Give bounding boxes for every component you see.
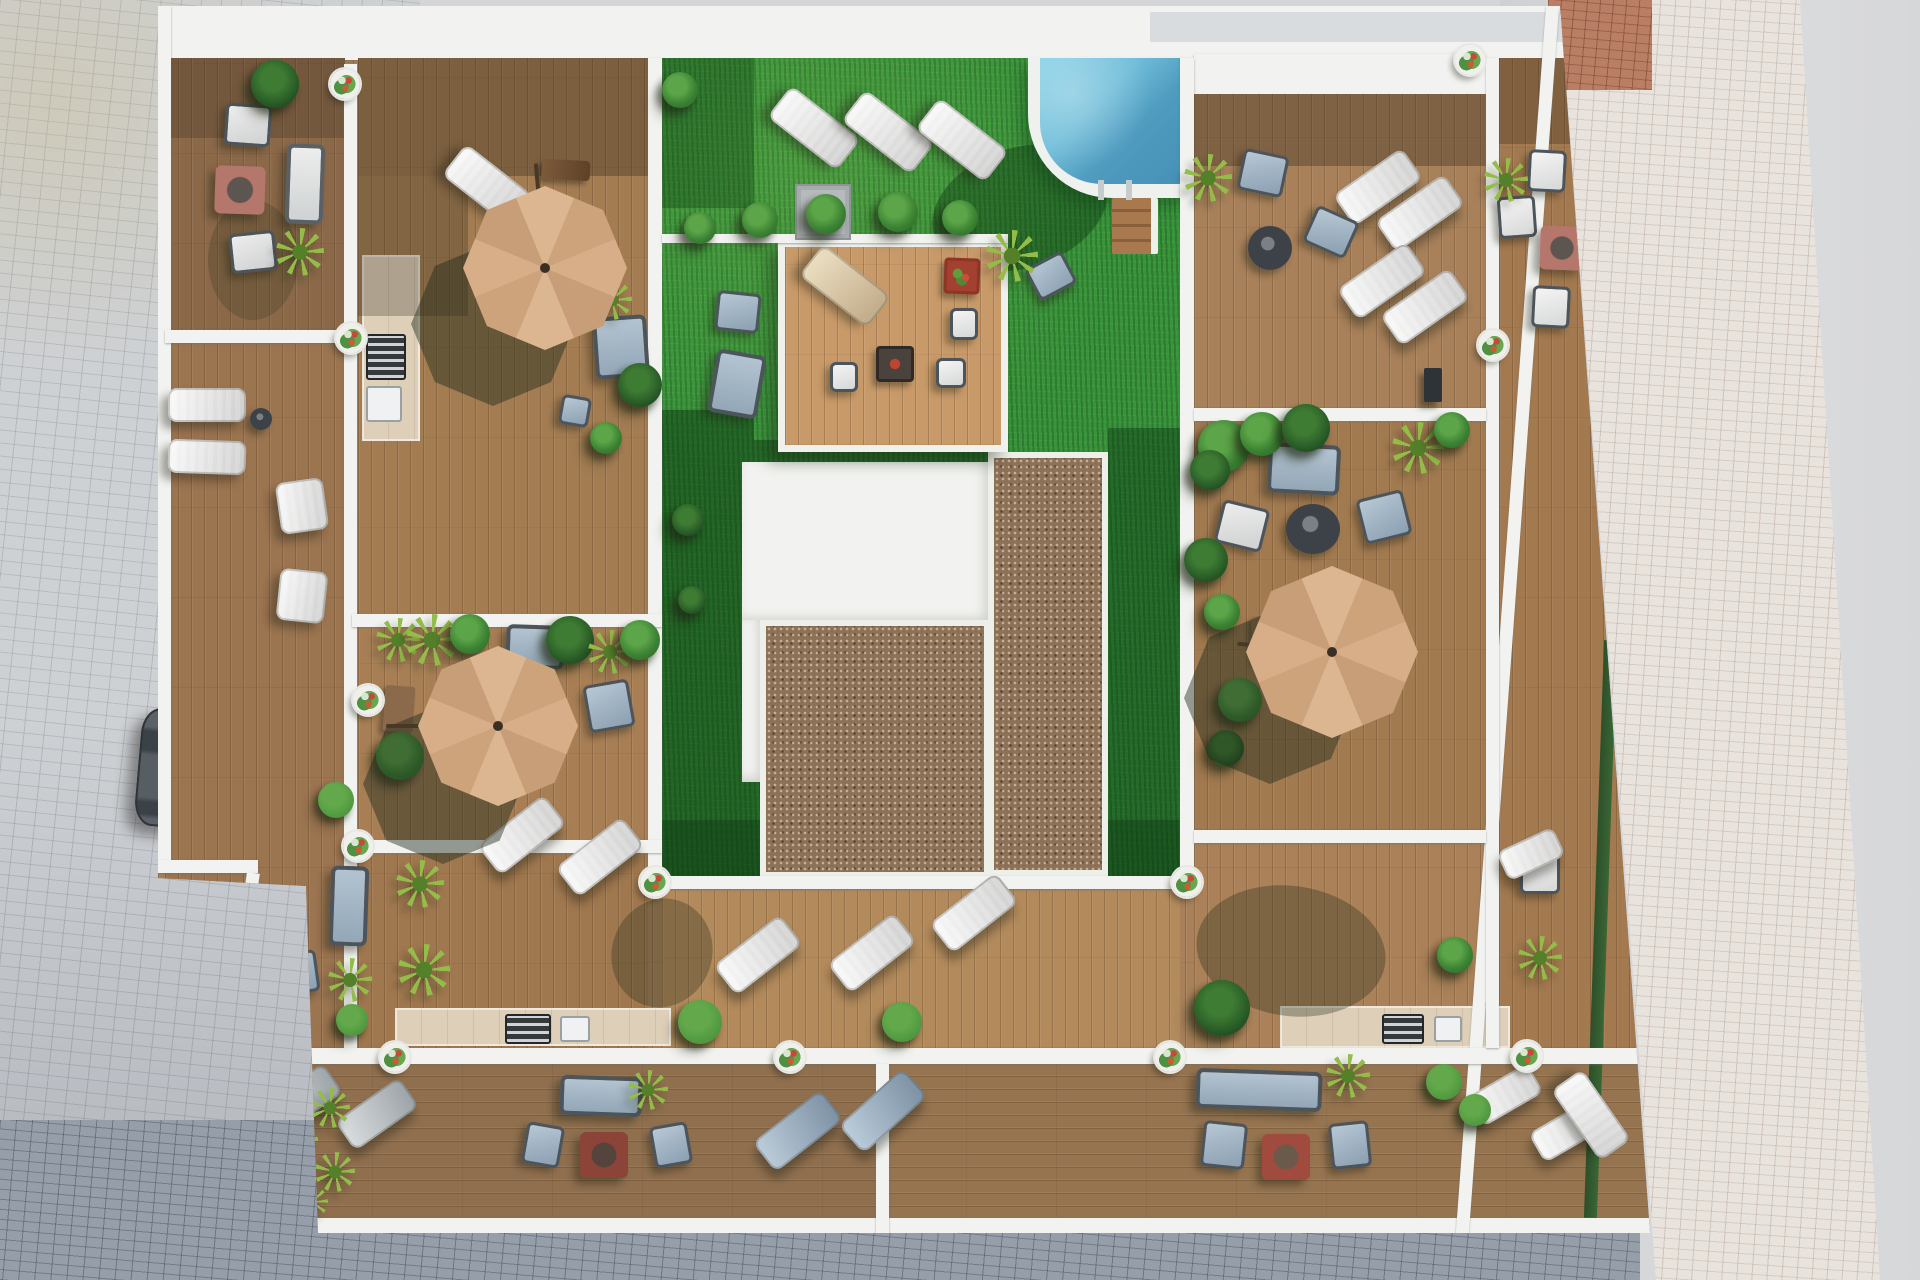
shrub <box>1437 937 1473 973</box>
pool-steps <box>1112 198 1158 254</box>
palm-plant <box>398 944 450 996</box>
parapet-wall <box>158 6 171 872</box>
shrub <box>336 1004 368 1036</box>
swimming-pool <box>1040 58 1182 184</box>
pool-ladder <box>1098 180 1132 200</box>
flower-planter <box>943 257 980 294</box>
grass-shadow-right <box>1108 428 1180 876</box>
shrub <box>942 200 978 236</box>
palm-plant <box>310 1088 350 1128</box>
outdoor-sink <box>366 386 402 422</box>
outdoor-sofa <box>1195 1068 1322 1112</box>
shrub <box>618 363 662 407</box>
parapet-wall <box>296 1218 1652 1233</box>
sun-lounger <box>167 439 246 476</box>
shrub <box>678 586 706 614</box>
white-ne-band <box>1194 54 1486 94</box>
outdoor-chair <box>830 362 858 392</box>
palm-plant <box>1518 936 1562 980</box>
parapet-wall <box>158 860 258 873</box>
sun-lounger <box>275 477 330 535</box>
flower-pot <box>1172 867 1202 897</box>
rooftop <box>158 6 1650 1233</box>
shrub <box>1434 412 1470 448</box>
gravel-roof-south <box>760 620 990 878</box>
outdoor-sofa <box>329 865 370 946</box>
shrub <box>806 194 846 234</box>
fire-table <box>580 1132 628 1178</box>
shrub <box>1184 538 1228 582</box>
shrub <box>1426 1064 1462 1100</box>
building-shadow-ne <box>1194 94 1486 166</box>
round-table <box>1286 504 1340 554</box>
palm-plant <box>1484 158 1528 202</box>
outdoor-sofa <box>285 143 326 224</box>
coffee-table <box>876 346 914 382</box>
sun-lounger <box>168 388 246 422</box>
parasol-pole <box>1327 647 1337 657</box>
flower-pot <box>336 323 366 353</box>
parasol-pole <box>493 721 503 731</box>
palm-plant <box>328 958 372 1002</box>
shrub <box>878 192 918 232</box>
parapet-wall <box>282 1048 1650 1064</box>
rooftop-terrace-aerial-render <box>0 0 1920 1280</box>
core-white-roof-sliver <box>742 620 762 782</box>
bbq-grill <box>1382 1014 1424 1044</box>
outdoor-sink <box>560 1016 590 1042</box>
flower-pot <box>775 1042 805 1072</box>
patio-heater <box>1424 368 1442 402</box>
shrub <box>1459 1094 1491 1126</box>
shrub <box>684 212 716 244</box>
palm-plant <box>1326 1054 1370 1098</box>
flower-pot <box>640 867 670 897</box>
flower-pot <box>330 69 360 99</box>
palm-plant <box>396 860 444 908</box>
bbq-grill <box>366 334 406 380</box>
parapet-wall <box>1194 830 1486 843</box>
shrub <box>678 1000 722 1044</box>
shrub <box>1204 594 1240 630</box>
outdoor-chair <box>1328 1120 1373 1170</box>
shrub <box>318 782 354 818</box>
shrub <box>1240 412 1284 456</box>
outdoor-chair <box>649 1121 694 1169</box>
fire-table <box>1262 1134 1310 1180</box>
shrub <box>882 1002 922 1042</box>
sun-lounger <box>275 568 328 625</box>
shrub <box>251 60 299 108</box>
palm-plant <box>315 1152 355 1192</box>
shrub <box>620 620 660 660</box>
flower-pot <box>380 1042 410 1072</box>
fire-table <box>214 165 266 215</box>
flower-pot <box>1512 1041 1542 1071</box>
palm-plant <box>628 1070 668 1110</box>
shrub <box>1194 980 1250 1036</box>
outdoor-chair <box>521 1121 566 1169</box>
outdoor-chair <box>936 358 966 388</box>
shrub <box>1282 404 1330 452</box>
outdoor-chair <box>1527 149 1567 193</box>
building-shadow-nw <box>358 58 648 176</box>
parasol-pole <box>540 263 550 273</box>
flower-pot <box>1455 45 1485 75</box>
outdoor-chair <box>228 230 278 275</box>
shrub <box>1190 450 1230 490</box>
parapet-wall <box>648 876 1194 889</box>
outdoor-chair <box>582 678 636 733</box>
gravel-roof-east <box>988 452 1108 876</box>
ledge-gray-band <box>1150 12 1602 42</box>
wood-bench <box>542 159 591 181</box>
shrub <box>450 614 490 654</box>
outdoor-chair <box>714 290 762 334</box>
outdoor-sink <box>1434 1016 1462 1042</box>
bbq-grill <box>505 1014 551 1044</box>
parapet-wall <box>648 58 662 890</box>
palm-plant <box>986 230 1038 282</box>
grass-shadow-left <box>662 410 754 876</box>
shrub <box>672 504 704 536</box>
outdoor-chair <box>224 102 273 147</box>
shrub <box>546 616 594 664</box>
shrub <box>590 422 622 454</box>
flower-pot <box>343 831 373 861</box>
outdoor-chair <box>950 308 978 340</box>
outdoor-chair <box>1200 1120 1249 1170</box>
shrub <box>742 202 778 238</box>
flower-pot <box>1478 330 1508 360</box>
round-table <box>250 408 272 430</box>
palm-plant <box>276 228 324 276</box>
outdoor-chair <box>1531 285 1571 329</box>
outdoor-chair <box>558 394 593 429</box>
flower-pot <box>353 685 383 715</box>
flower-pot <box>1155 1042 1185 1072</box>
palm-plant <box>1184 154 1232 202</box>
round-table <box>1248 226 1292 270</box>
parapet-wall <box>165 330 357 343</box>
shrub <box>662 72 698 108</box>
core-white-roof <box>742 462 988 622</box>
